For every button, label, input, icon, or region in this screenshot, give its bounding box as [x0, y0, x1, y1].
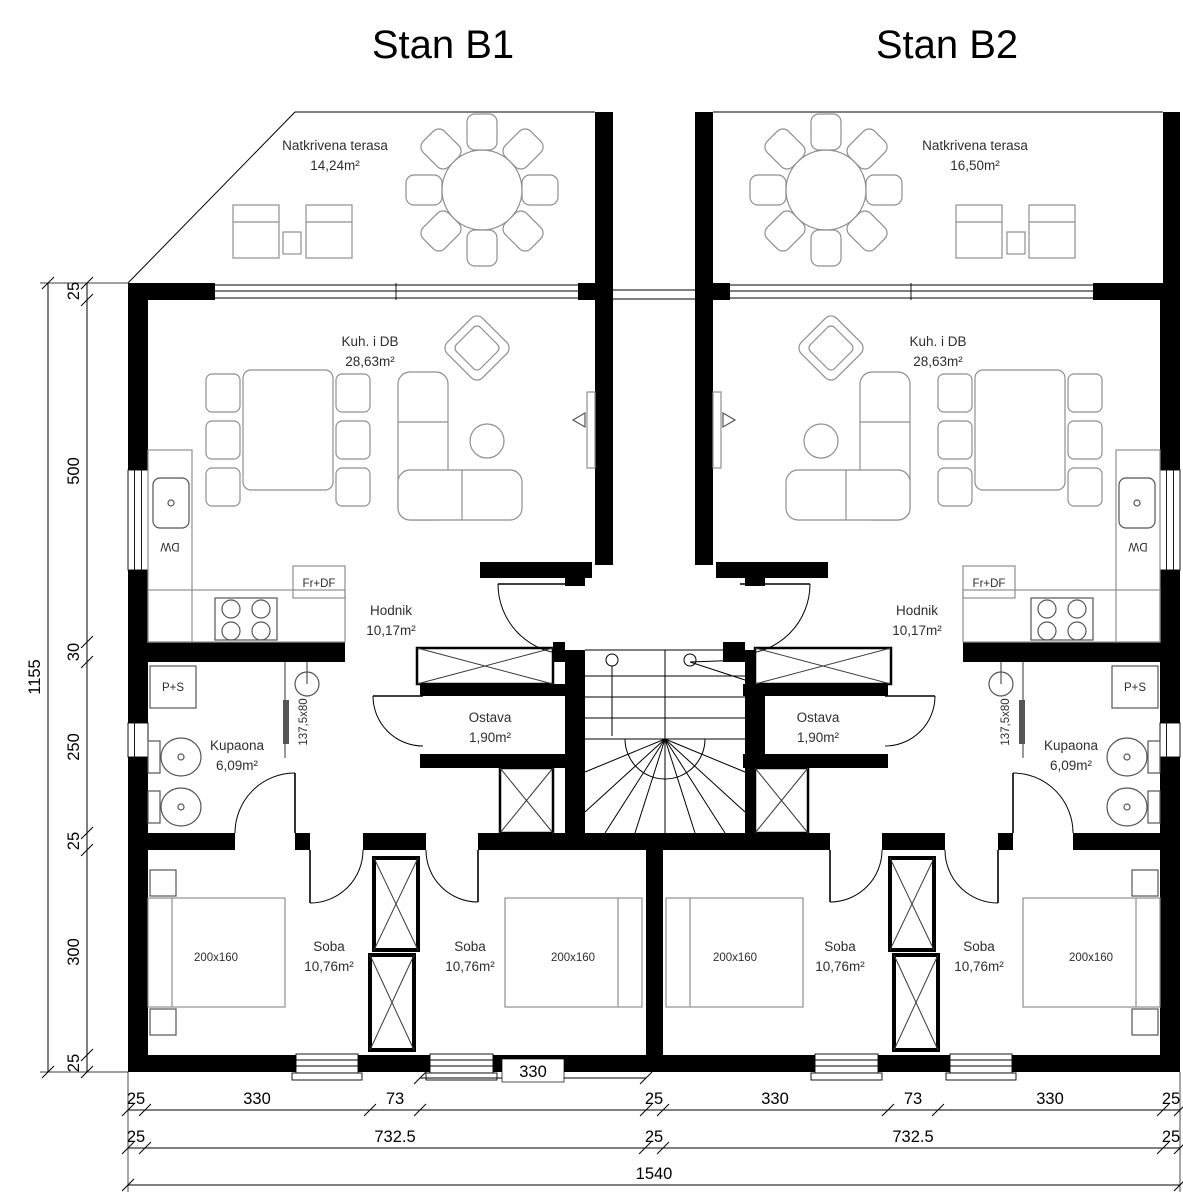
storage-b1-area: 1,90m²	[469, 730, 512, 745]
dim-left-2: 30	[65, 643, 83, 661]
living-b1-furniture	[206, 313, 595, 520]
dim-bottom2-0: 25	[127, 1128, 145, 1146]
living-b1-name: Kuh. i DB	[341, 334, 398, 349]
bedroom1-b1-name: Soba	[313, 939, 345, 954]
storage-b2-area: 1,90m²	[797, 730, 840, 745]
dim-left-6: 25	[65, 1054, 83, 1072]
living-b2-area: 28,63m²	[913, 354, 963, 369]
bath-b1-area: 6,09m²	[216, 758, 259, 773]
dim-bottom1-8: 25	[1162, 1090, 1180, 1108]
bedroom1-b1-area: 10,76m²	[304, 959, 354, 974]
apartment-title-b2: Stan B2	[876, 23, 1018, 67]
apartment-title-b1: Stan B1	[372, 23, 514, 67]
washer-label-b2: P+S	[1124, 682, 1146, 694]
hall-b1-area: 10,17m²	[366, 623, 416, 638]
hall-b2-name: Hodnik	[896, 603, 938, 618]
bed-b1-2-size: 200x160	[551, 952, 595, 964]
terrace-b1-furniture	[233, 114, 558, 266]
dishwasher-label-b2: DW	[1128, 540, 1147, 552]
bath-b2-area: 6,09m²	[1050, 758, 1093, 773]
dim-bottom1-7: 330	[1036, 1090, 1064, 1108]
terrace-b2-furniture	[750, 114, 1075, 266]
bed-b2-1-size: 200x160	[713, 952, 757, 964]
shower-size-label-b2: 137,5x80	[1000, 698, 1012, 745]
bedroom2-b2-name: Soba	[963, 939, 995, 954]
dishwasher-label-b1: DW	[160, 540, 179, 552]
floor-plan-page: Stan B1 Stan B2	[0, 0, 1183, 1200]
walls	[128, 112, 1180, 1072]
bedroom2-b1-name: Soba	[454, 939, 486, 954]
dim-left-1: 500	[65, 457, 83, 485]
living-b1-area: 28,63m²	[345, 354, 395, 369]
bath-b1-name: Kupaona	[210, 738, 265, 753]
washer-label-b1: P+S	[162, 682, 184, 694]
terrace-b2-area: 16,50m²	[950, 158, 1000, 173]
bath-b2-name: Kupaona	[1044, 738, 1099, 753]
dimensions-bottom: 330 25 330 73 25 330 73 330 25 25 732.5 …	[122, 1059, 1183, 1192]
dim-bottom1-2: 73	[386, 1090, 404, 1108]
storage-b2-name: Ostava	[797, 710, 840, 725]
dim-bottom1-5: 330	[761, 1090, 789, 1108]
dim-bottom1-6: 73	[904, 1090, 922, 1108]
terrace-b1-name: Natkrivena terasa	[282, 138, 388, 153]
bedroom1-b2-area: 10,76m²	[815, 959, 865, 974]
dim-bottom2-1: 732.5	[374, 1128, 415, 1146]
dimensions-left: 25 500 30 250 25 300 25 1155	[26, 277, 128, 1078]
dim-left-4: 25	[65, 832, 83, 850]
floor-plan-drawing: Stan B1 Stan B2	[0, 0, 1183, 1200]
fridge-label-b2: Fr+DF	[973, 578, 1006, 590]
bed-b2-2-size: 200x160	[1069, 952, 1113, 964]
dim-bottom-total: 1540	[636, 1165, 673, 1183]
dim-left-total: 1155	[26, 659, 44, 694]
dim-left-5: 300	[65, 938, 83, 966]
dim-left-3: 250	[65, 733, 83, 761]
terrace-b1-area: 14,24m²	[310, 158, 360, 173]
storage-b1-name: Ostava	[469, 710, 512, 725]
staircase	[585, 650, 745, 833]
dim-left-0: 25	[65, 282, 83, 300]
dim-bottom1-1: 330	[243, 1090, 271, 1108]
dim-bottom2-3: 732.5	[892, 1128, 933, 1146]
dim-bottom1-4: 25	[645, 1090, 663, 1108]
hall-b2-area: 10,17m²	[892, 623, 942, 638]
bedroom1-b2-name: Soba	[824, 939, 856, 954]
bed-b1-1-size: 200x160	[194, 952, 238, 964]
living-b2-name: Kuh. i DB	[909, 334, 966, 349]
bedroom2-b2-area: 10,76m²	[954, 959, 1004, 974]
dim-bottom2-4: 25	[1162, 1128, 1180, 1146]
dim-bottom2-2: 25	[645, 1128, 663, 1146]
bedroom2-b1-area: 10,76m²	[445, 959, 495, 974]
dim-bottom1-0: 25	[127, 1090, 145, 1108]
shower-size-label-b1: 137,5x80	[298, 698, 310, 745]
terrace-b2-name: Natkrivena terasa	[922, 138, 1028, 153]
dim-bottom-raised: 330	[519, 1063, 547, 1081]
fridge-label-b1: Fr+DF	[303, 578, 336, 590]
living-b2-furniture	[713, 313, 1102, 520]
hall-b1-name: Hodnik	[370, 603, 412, 618]
